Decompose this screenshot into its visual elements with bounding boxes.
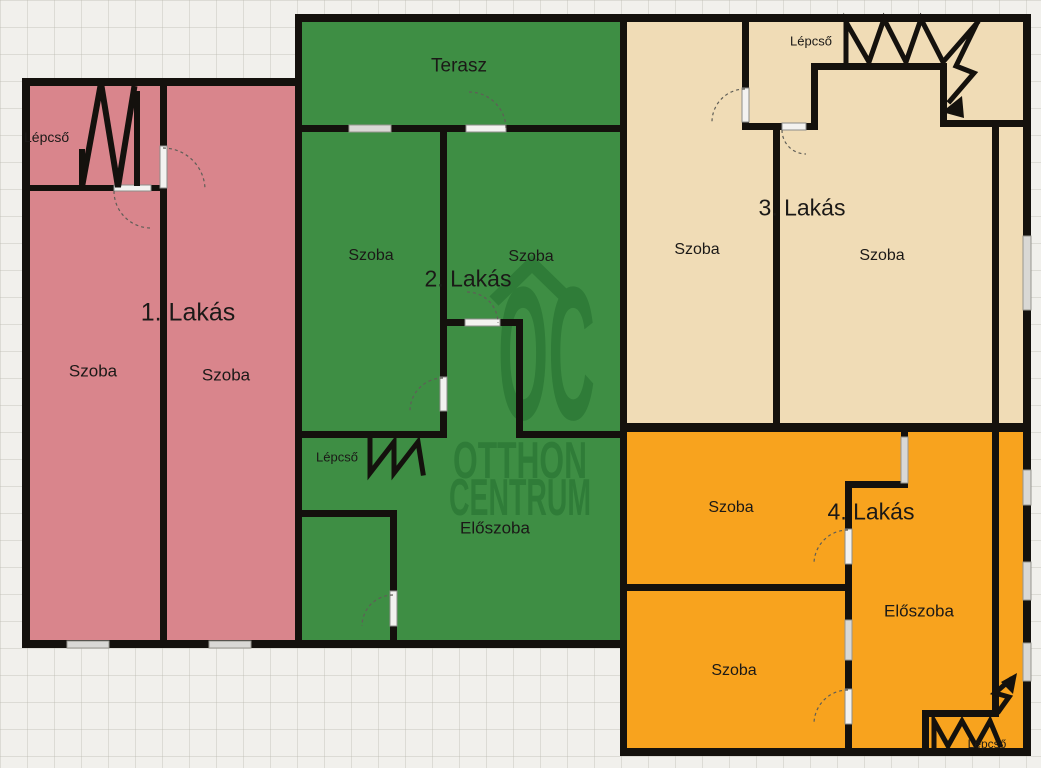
apartment-2-walls — [295, 14, 627, 648]
apt3-stairs-label: Lépcső — [790, 35, 832, 48]
apt1-stairs-label: Lépcső — [24, 130, 69, 144]
door-leaf — [845, 689, 852, 724]
door-leaf — [440, 377, 447, 411]
door-leaf — [466, 125, 506, 132]
apt2-terrace-label: Terasz — [431, 57, 487, 76]
apt3-room2-label: Szoba — [859, 248, 904, 264]
apt4-hall-label: Előszoba — [884, 603, 954, 620]
door-swing-arcs — [114, 89, 848, 724]
stairs-icon — [370, 438, 423, 473]
window — [1023, 562, 1031, 600]
stairs-arrowhead — [1001, 673, 1017, 694]
door-leaf — [845, 529, 852, 564]
apt1-room2-label: Szoba — [202, 367, 250, 384]
apt4-room2-label: Szoba — [711, 663, 756, 679]
window — [845, 620, 852, 660]
window — [1023, 470, 1031, 505]
apt2-stairs-label: Lépcső — [316, 451, 358, 464]
floorplan-structure — [0, 0, 1041, 768]
apt4-stairs-label: Lépcső — [968, 738, 1007, 750]
door-leaf — [782, 123, 806, 130]
apt1-name-label: 1. Lakás — [141, 301, 236, 326]
apt2-hall-label: Előszoba — [460, 520, 530, 537]
apt3-room1-label: Szoba — [674, 242, 719, 258]
apartment-4-walls — [620, 429, 1031, 756]
window — [901, 437, 908, 483]
apt4-room1-label: Szoba — [708, 500, 753, 516]
stairs-icon — [82, 83, 137, 187]
door-leaf — [390, 591, 397, 626]
apt4-name-label: 4. Lakás — [828, 501, 915, 524]
apt2-name-label: 2. Lakás — [425, 268, 512, 291]
apt2-room2-label: Szoba — [508, 249, 553, 265]
door-leaf — [160, 146, 167, 188]
window — [209, 641, 251, 648]
floorplan-canvas: OC OTTHON CENTRUM — [0, 0, 1041, 768]
window — [1023, 236, 1031, 310]
apt2-room1-label: Szoba — [348, 248, 393, 264]
door-leaf — [465, 319, 500, 326]
apt1-room1-label: Szoba — [69, 363, 117, 380]
apt3-name-label: 3. Lakás — [759, 197, 846, 220]
window — [67, 641, 109, 648]
window — [349, 125, 391, 132]
window — [1023, 643, 1031, 681]
stairs-icon — [846, 19, 977, 101]
doors-and-windows — [67, 88, 1031, 724]
door-leaf — [742, 88, 749, 122]
